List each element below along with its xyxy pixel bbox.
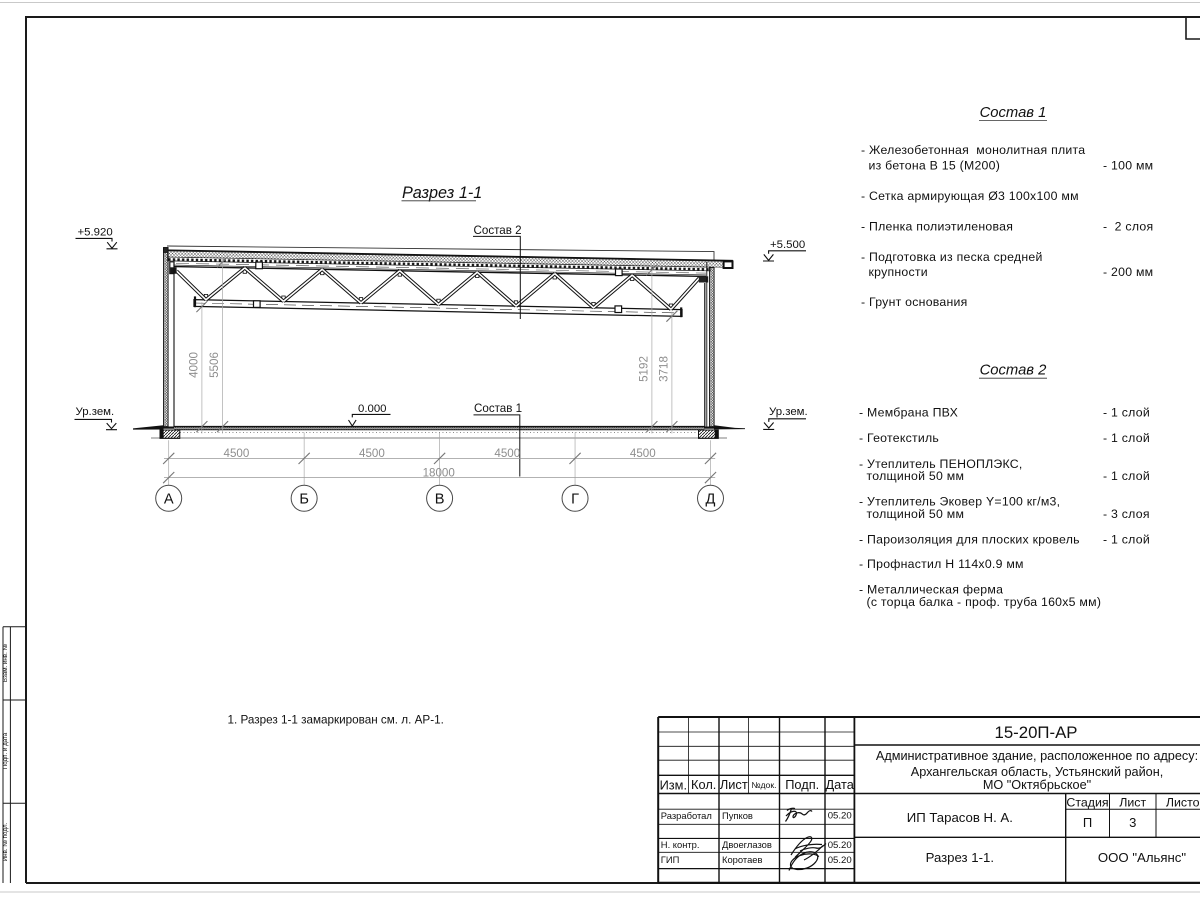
svg-text:15-20П-АР: 15-20П-АР — [995, 723, 1078, 742]
svg-text:5192: 5192 — [637, 356, 650, 382]
svg-text:Состав 1: Состав 1 — [474, 402, 522, 415]
svg-text:Разрез 1-1: Разрез 1-1 — [402, 184, 482, 202]
svg-text:Листов: Листов — [1166, 795, 1200, 809]
svg-text:В: В — [435, 491, 445, 507]
svg-text:4500: 4500 — [359, 447, 385, 460]
svg-text:Пупков: Пупков — [722, 810, 753, 821]
svg-text:Стадия: Стадия — [1066, 795, 1108, 809]
svg-text:Д: Д — [706, 491, 716, 507]
svg-text:ИП Тарасов Н. А.: ИП Тарасов Н. А. — [907, 810, 1013, 825]
svg-text:18000: 18000 — [423, 466, 455, 479]
svg-text:- Мембрана ПВХ: - Мембрана ПВХ — [859, 406, 958, 420]
svg-text:Состав 1: Состав 1 — [980, 105, 1047, 121]
svg-text:толщиной 50 мм: толщиной 50 мм — [867, 507, 965, 521]
svg-text:- 1 слой: - 1 слой — [1103, 469, 1150, 483]
svg-text:(с торца балка - проф. труба 1: (с торца балка - проф. труба 160х5 мм) — [867, 595, 1102, 609]
svg-text:Разработал: Разработал — [661, 810, 712, 821]
svg-text:из бетона В 15 (М200): из бетона В 15 (М200) — [869, 158, 1001, 172]
svg-text:05.20: 05.20 — [828, 811, 852, 822]
svg-text:- 1 слой: - 1 слой — [1103, 533, 1150, 547]
svg-text:Н. контр.: Н. контр. — [661, 839, 700, 850]
svg-text:0.000: 0.000 — [358, 403, 387, 415]
svg-text:Состав 2: Состав 2 — [474, 224, 522, 237]
svg-text:1. Разрез 1-1 замаркирован см.: 1. Разрез 1-1 замаркирован см. л. АР-1. — [228, 714, 444, 727]
svg-text:- Пленка полиэтиленовая: - Пленка полиэтиленовая — [861, 220, 1013, 234]
svg-text:+5.920: +5.920 — [78, 227, 113, 239]
svg-text:- 1 слой: - 1 слой — [1103, 406, 1150, 420]
svg-text:Кол.: Кол. — [691, 777, 716, 792]
svg-text:- 2 слоя: - 2 слоя — [1103, 220, 1153, 234]
svg-text:ГИП: ГИП — [661, 854, 680, 865]
svg-text:Изм.: Изм. — [660, 778, 687, 793]
svg-text:5506: 5506 — [208, 352, 221, 378]
svg-text:Инв. № подл.: Инв. № подл. — [2, 822, 9, 861]
svg-text:- Сетка армирующая Ø3 100х100: - Сетка армирующая Ø3 100х100 мм — [861, 189, 1079, 203]
svg-text:Ур.зем.: Ур.зем. — [76, 406, 115, 418]
svg-text:Коротаев: Коротаев — [722, 854, 763, 865]
svg-text:4500: 4500 — [224, 447, 250, 460]
svg-text:Взам. инв. №: Взам. инв. № — [2, 643, 9, 682]
svg-text:05.20: 05.20 — [828, 855, 852, 866]
svg-text:- Профнастил Н 114х0.9 мм: - Профнастил Н 114х0.9 мм — [859, 557, 1024, 571]
svg-text:- Пароизоляция для плоских кро: - Пароизоляция для плоских кровель — [859, 533, 1080, 547]
svg-text:Подп.: Подп. — [785, 777, 819, 792]
svg-text:Г: Г — [571, 491, 579, 507]
svg-text:Архангельская область, Устьянс: Архангельская область, Устьянский район, — [911, 765, 1164, 779]
svg-text:крупности: крупности — [869, 265, 928, 279]
svg-text:3718: 3718 — [657, 356, 670, 382]
svg-text:толщиной 50 мм: толщиной 50 мм — [867, 469, 965, 483]
svg-text:05.20: 05.20 — [828, 840, 852, 851]
svg-text:Подп. и дата: Подп. и дата — [2, 732, 9, 769]
svg-text:4000: 4000 — [187, 352, 200, 378]
svg-text:Лист: Лист — [1119, 795, 1146, 809]
svg-text:Ур.зем.: Ур.зем. — [769, 406, 808, 418]
svg-text:- Железобетонная монолитная п: - Железобетонная монолитная плита — [861, 143, 1085, 157]
svg-text:Б: Б — [299, 491, 309, 507]
svg-text:+5.500: +5.500 — [770, 239, 805, 251]
svg-text:- Подготовка из песка средней: - Подготовка из песка средней — [861, 250, 1043, 264]
svg-text:3: 3 — [1129, 815, 1136, 830]
svg-text:Состав 2: Состав 2 — [980, 363, 1048, 379]
svg-text:ООО "Альянс": ООО "Альянс" — [1098, 850, 1186, 865]
svg-text:- 3 слоя: - 3 слоя — [1103, 507, 1150, 521]
svg-text:Административное здание, распо: Административное здание, расположенное п… — [876, 749, 1198, 763]
svg-text:Разрез 1-1.: Разрез 1-1. — [926, 850, 994, 865]
svg-text:Лист: Лист — [720, 777, 748, 792]
svg-text:- 100 мм: - 100 мм — [1103, 158, 1153, 172]
svg-text:Двоеглазов: Двоеглазов — [722, 839, 772, 850]
svg-text:- Грунт основания: - Грунт основания — [861, 295, 968, 309]
svg-text:- 1 слой: - 1 слой — [1103, 431, 1150, 445]
svg-text:4500: 4500 — [630, 447, 656, 460]
svg-text:МО "Октябрьское": МО "Октябрьское" — [983, 778, 1091, 792]
svg-text:А: А — [164, 491, 174, 507]
svg-text:№док.: №док. — [751, 780, 776, 790]
svg-text:4500: 4500 — [494, 447, 520, 460]
svg-text:Дата: Дата — [826, 777, 855, 792]
svg-text:- 200 мм: - 200 мм — [1103, 265, 1153, 279]
svg-text:П: П — [1083, 815, 1092, 830]
svg-text:- Геотекстиль: - Геотекстиль — [859, 431, 939, 445]
